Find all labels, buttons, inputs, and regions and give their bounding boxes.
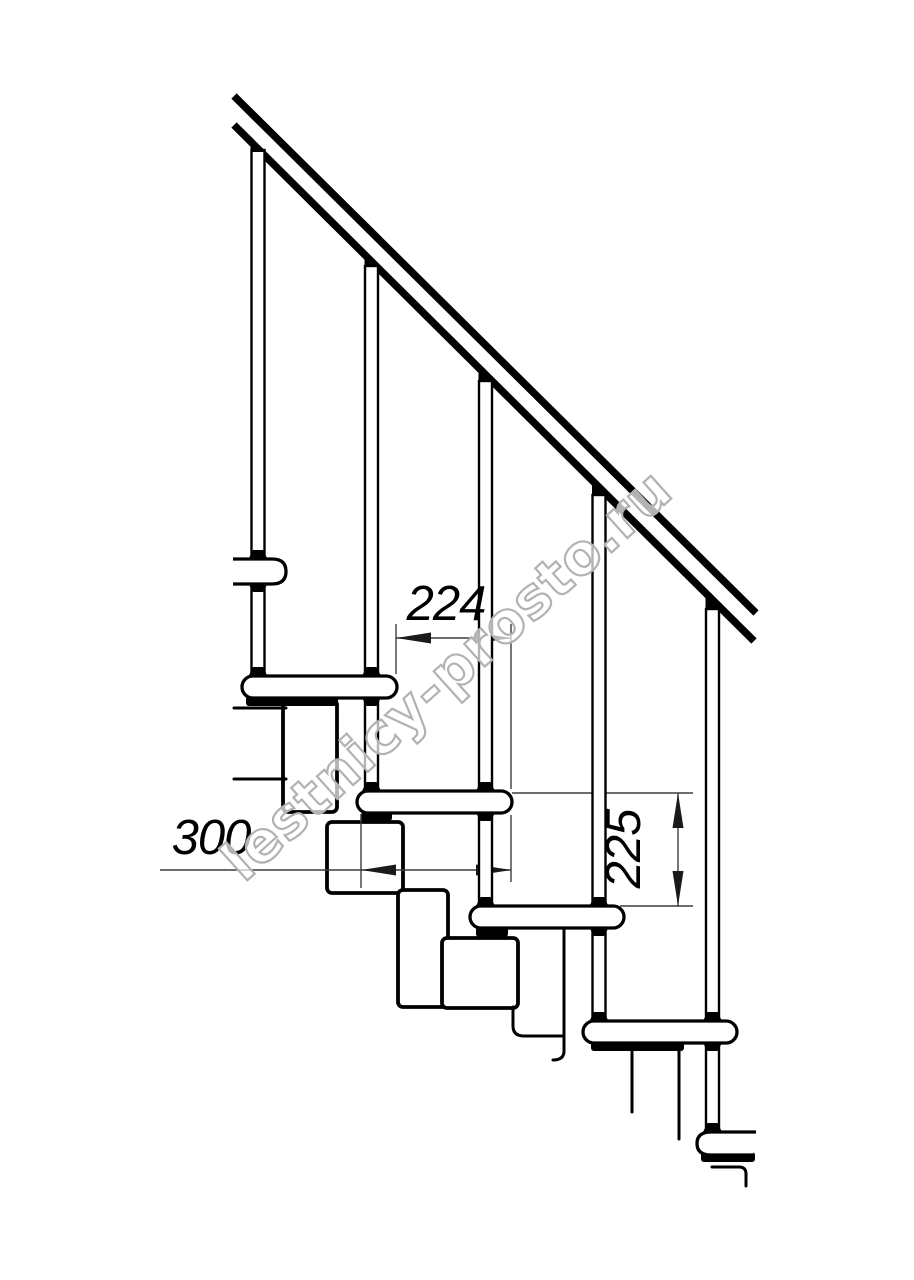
tread-6 <box>697 1132 756 1155</box>
tread-3 <box>357 791 512 813</box>
baluster-5 <box>706 609 719 1132</box>
staircase-technical-drawing: 224 300 225 lestnicy-prosto.ru <box>0 0 914 1280</box>
support-module-2 <box>327 822 403 893</box>
handrail <box>234 96 756 641</box>
support-module-4 <box>442 938 518 1008</box>
arrow-225-up <box>673 793 684 828</box>
drawing-canvas: 224 300 225 lestnicy-prosto.ru <box>0 0 914 1280</box>
baluster-1 <box>252 150 265 676</box>
tread-2 <box>242 676 397 698</box>
module-step-edge <box>513 1007 562 1036</box>
tread-4 <box>470 906 624 928</box>
tread-1 <box>233 559 286 584</box>
arrow-225-down <box>673 871 684 906</box>
handrail-lower-line <box>234 125 754 641</box>
bottom-bracket-edge <box>712 1167 746 1186</box>
hanger-line <box>553 929 564 1060</box>
dimension-label-225: 225 <box>597 808 651 890</box>
arrow-224-left <box>396 633 431 644</box>
handrail-upper-line <box>234 96 756 613</box>
tread-5 <box>583 1021 737 1043</box>
